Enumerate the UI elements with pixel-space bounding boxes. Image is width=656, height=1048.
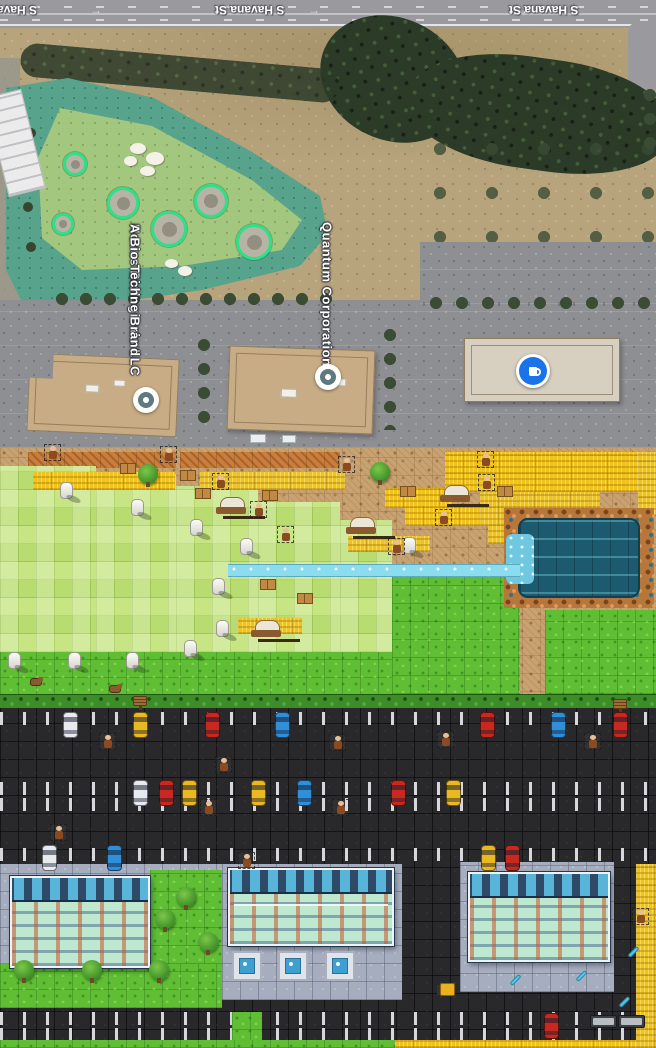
hedge-region <box>0 694 656 708</box>
hay-sprite <box>120 463 136 474</box>
street-label: S Havana St <box>215 3 284 17</box>
white-car-sprite[interactable] <box>42 845 57 871</box>
field-region <box>0 466 96 652</box>
npc-sprite[interactable] <box>44 444 61 461</box>
wagon-sprite[interactable] <box>216 497 246 517</box>
blue-car-sprite[interactable] <box>275 712 290 738</box>
npc-sprite[interactable] <box>215 756 232 773</box>
red-car-sprite[interactable] <box>391 780 406 806</box>
wagon-sprite[interactable] <box>440 485 470 505</box>
silo-sprite <box>60 482 73 499</box>
range-target <box>52 213 74 235</box>
mid-region <box>545 610 656 694</box>
cafe-map-marker[interactable] <box>516 354 550 388</box>
truck-sprite[interactable] <box>618 1015 645 1028</box>
npc-sprite[interactable] <box>632 908 649 925</box>
sand-bunker <box>178 266 192 276</box>
street-label-partial: S Havana St <box>0 3 37 17</box>
yellow-car-sprite[interactable] <box>182 780 197 806</box>
range-target <box>194 184 228 218</box>
tree-dirt-sprite <box>370 462 390 482</box>
bush-icon <box>26 242 36 252</box>
range-target <box>151 211 187 247</box>
poi-label-line: Quantum Corporation <box>318 222 334 367</box>
npc-sprite[interactable] <box>437 731 454 748</box>
wagon-sprite[interactable] <box>251 620 281 640</box>
hay-sprite <box>260 579 276 590</box>
silo-sprite <box>8 652 21 669</box>
npc-sprite[interactable] <box>277 526 294 543</box>
building-glass-roof <box>12 878 148 902</box>
tree-sprite <box>82 960 102 980</box>
npc-sprite[interactable] <box>238 852 255 869</box>
mid-region <box>0 1040 395 1048</box>
building-floor-divider <box>234 904 388 906</box>
npc-sprite[interactable] <box>99 733 116 750</box>
blue-car-sprite[interactable] <box>297 780 312 806</box>
tree-sprite <box>14 960 34 980</box>
building-interior <box>470 898 608 960</box>
sign-sprite <box>613 699 627 709</box>
novus-map-marker[interactable] <box>133 387 159 413</box>
office-building[interactable] <box>10 876 150 968</box>
hay-sprite <box>195 488 211 499</box>
building-interior <box>12 902 148 966</box>
bush-icon <box>23 202 33 212</box>
rooftop-unit <box>281 388 297 398</box>
silo-sprite <box>126 652 139 669</box>
rooftop-unit <box>113 379 125 387</box>
sand-bunker <box>130 143 146 154</box>
range-target <box>236 224 272 260</box>
screenshot-stage: S Havana St S Havana St S Havana St → → … <box>0 0 656 1048</box>
forklift-sprite[interactable] <box>440 983 455 996</box>
mug-icon <box>529 367 537 376</box>
quantum-map-marker[interactable] <box>315 364 341 390</box>
office-building[interactable] <box>228 868 394 946</box>
hay-sprite <box>297 593 313 604</box>
sand-bunker <box>124 156 137 166</box>
silo-sprite <box>190 519 203 536</box>
range-target <box>107 187 139 219</box>
yellow-car-sprite[interactable] <box>446 780 461 806</box>
hay-sprite <box>497 486 513 497</box>
fountain-sprite <box>278 951 308 981</box>
red-car-sprite[interactable] <box>613 712 628 738</box>
sign-sprite <box>133 696 147 706</box>
silo-sprite <box>240 538 253 555</box>
hay-sprite <box>180 470 196 481</box>
tree-column <box>640 86 656 150</box>
tilled-region <box>180 452 340 468</box>
dog-sprite <box>109 685 121 693</box>
tree-row <box>52 290 342 308</box>
red-car-sprite[interactable] <box>505 845 520 871</box>
white-car-sprite[interactable] <box>133 780 148 806</box>
stream-region <box>228 564 520 577</box>
yellow-car-sprite[interactable] <box>251 780 266 806</box>
satellite-map: S Havana St S Havana St S Havana St → → … <box>0 0 656 448</box>
npc-sprite[interactable] <box>332 799 349 816</box>
sand-bunker <box>146 152 164 165</box>
building-glass-roof <box>230 870 392 894</box>
wagon-sprite[interactable] <box>346 517 376 537</box>
red-car-sprite[interactable] <box>544 1013 559 1039</box>
range-target <box>63 152 87 176</box>
silo-sprite <box>131 499 144 516</box>
fountain-sprite <box>232 951 262 981</box>
road-edge-line <box>0 24 656 26</box>
lane-direction-arrow-icon: → <box>90 4 102 16</box>
tree-column <box>194 336 212 434</box>
yellow-car-sprite[interactable] <box>481 845 496 871</box>
hay-sprite <box>262 490 278 501</box>
npc-sprite[interactable] <box>338 456 355 473</box>
ticks-region <box>0 798 656 811</box>
building-interior <box>230 894 392 944</box>
poi-label-line: A Bio-Techne Brand <box>126 224 142 357</box>
blue-car-sprite[interactable] <box>107 845 122 871</box>
ticks-region <box>0 848 656 861</box>
tree-sprite <box>149 960 169 980</box>
npc-sprite[interactable] <box>212 473 229 490</box>
npc-sprite[interactable] <box>388 538 405 555</box>
red-car-sprite[interactable] <box>159 780 174 806</box>
npc-sprite[interactable] <box>50 824 67 841</box>
npc-sprite[interactable] <box>329 734 346 751</box>
sand-bunker <box>140 166 155 176</box>
wheat-region <box>395 1040 656 1048</box>
silo-sprite <box>68 652 81 669</box>
blue-car-sprite[interactable] <box>551 712 566 738</box>
tree-row <box>426 294 656 314</box>
npc-sprite[interactable] <box>478 474 495 491</box>
fountain-sprite <box>325 951 355 981</box>
building-quantum <box>227 345 376 434</box>
npc-sprite[interactable] <box>200 799 217 816</box>
loading-truck <box>250 434 266 443</box>
silo-sprite <box>216 620 229 637</box>
npc-sprite[interactable] <box>435 509 452 526</box>
tree-column <box>380 326 400 430</box>
silo-sprite <box>212 578 225 595</box>
tree-sprite <box>176 887 196 907</box>
red-car-sprite[interactable] <box>205 712 220 738</box>
tree-dirt-sprite <box>138 464 158 484</box>
sand-bunker <box>165 259 178 268</box>
truck-sprite[interactable] <box>590 1015 617 1028</box>
white-car-sprite[interactable] <box>63 712 78 738</box>
building-glass-roof <box>470 874 608 898</box>
lane-direction-arrow-icon: → <box>516 4 528 16</box>
yellow-car-sprite[interactable] <box>133 712 148 738</box>
lane-direction-arrow-icon: → <box>308 4 320 16</box>
silo-sprite <box>184 640 197 657</box>
cross-street-road <box>628 22 656 90</box>
loading-truck <box>282 435 296 443</box>
ticks-region <box>0 782 656 795</box>
tree-sprite <box>198 932 218 952</box>
npc-sprite[interactable] <box>584 733 601 750</box>
hay-sprite <box>400 486 416 497</box>
dog-sprite <box>30 678 42 686</box>
wheat-region <box>638 452 656 516</box>
npc-sprite[interactable] <box>160 446 177 463</box>
red-car-sprite[interactable] <box>480 712 495 738</box>
tree-sprite <box>155 909 175 929</box>
water-region <box>518 518 640 598</box>
npc-sprite[interactable] <box>477 451 494 468</box>
mid-region <box>392 576 520 694</box>
npc-sprite[interactable] <box>250 501 267 518</box>
lane-dashes <box>0 19 656 21</box>
office-building[interactable] <box>468 872 610 962</box>
rooftop-unit <box>85 384 99 393</box>
